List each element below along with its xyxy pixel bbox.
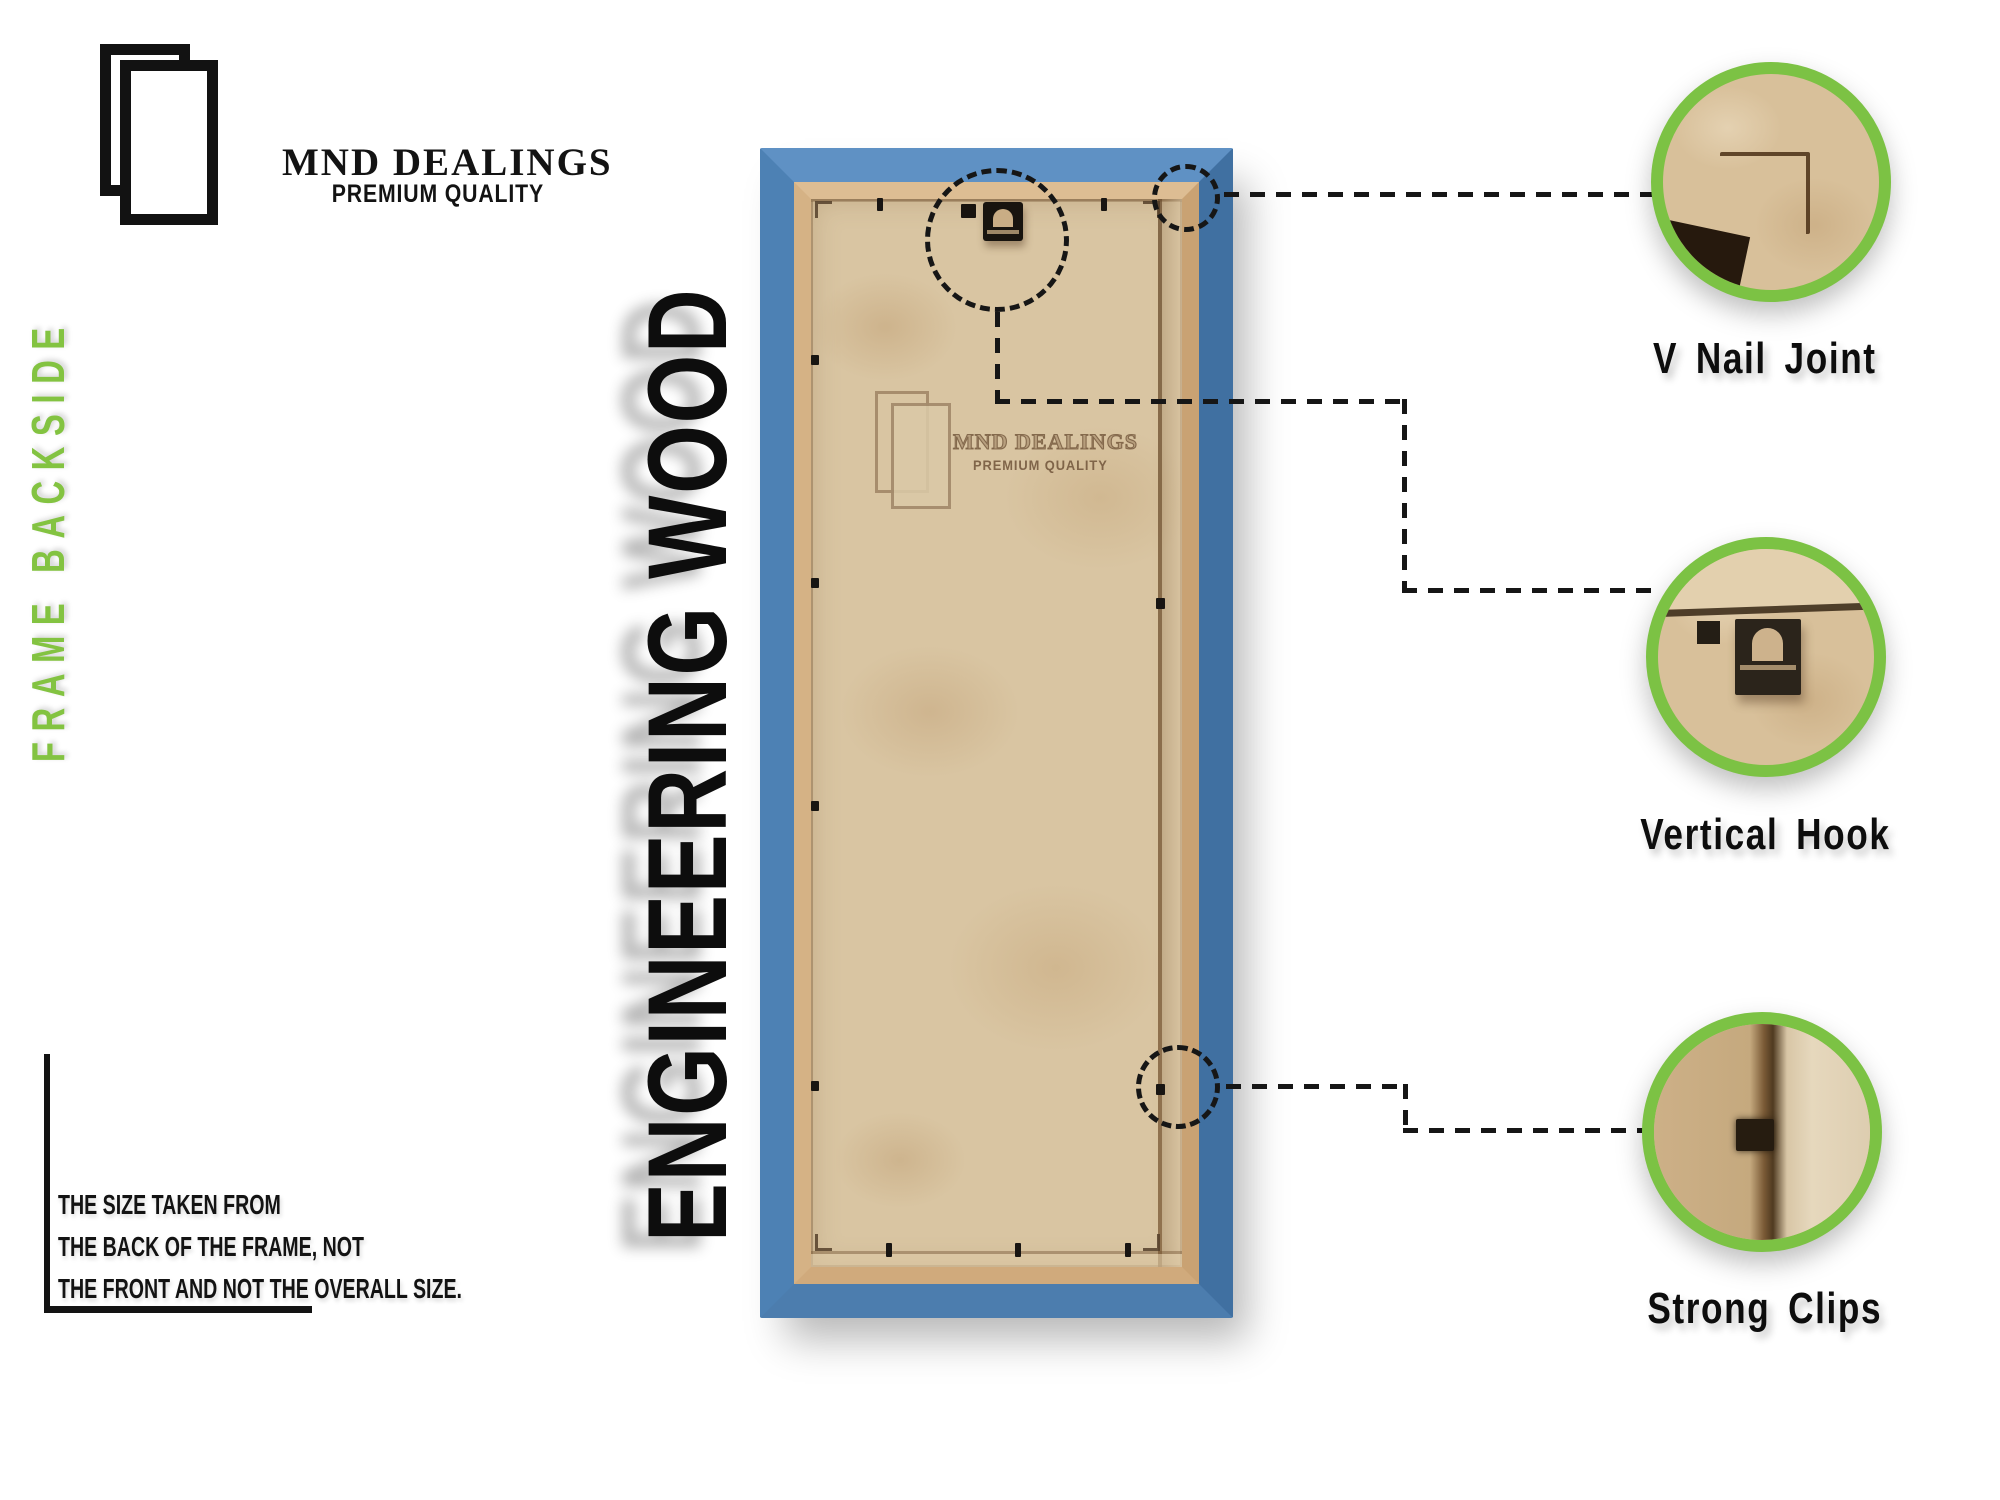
hook-bar [1740,665,1796,670]
watermark-name: MND DEALINGS [953,429,1138,455]
connector-vertical-hook-segment [995,312,1000,402]
hook-notch [1697,621,1720,644]
clip-mark [1125,1243,1131,1257]
brand-name: MND DEALINGS [282,140,613,185]
clip-mark [811,1081,819,1091]
v-nail-groove [1720,152,1810,234]
watermark-tagline: PREMIUM QUALITY [973,457,1108,473]
corner-bracket-icon [815,201,832,218]
note-accent-line-vertical [44,1054,50,1312]
hanging-hook-icon [1735,619,1801,695]
clip-mark [811,355,819,365]
clip-mark [811,801,819,811]
corner-bracket-icon [815,1234,832,1251]
highlight-circle-vertical-hook [925,168,1069,312]
size-note-line: THE BACK OF THE FRAME, NOT [58,1226,462,1268]
connector-strong-clips-segment [1226,1084,1408,1089]
clip-mark [877,198,883,211]
moulding-edge-strip [1658,549,1874,609]
callout-label-strong-clips: Strong Clips [1565,1284,1965,1334]
connector-strong-clips-segment [1403,1084,1408,1132]
size-note-line: THE FRONT AND NOT THE OVERALL SIZE. [58,1268,462,1310]
connector-vertical-hook-segment [1402,588,1658,593]
brand-tagline: PREMIUM QUALITY [332,180,544,209]
clip-mark [1156,598,1165,609]
hook-arch [1752,628,1783,661]
clip-mark [811,578,819,588]
strong-clip-icon [1736,1119,1774,1151]
brand-tagline-wrap: PREMIUM QUALITY [282,180,594,209]
watermark-frame-logo-front-icon [891,403,951,509]
corner-bracket-icon [1143,1234,1160,1251]
brand-frame-logo-front-icon [120,60,218,225]
product-title: ENGINEERING WOOD [632,191,752,1242]
connector-v-nail-joint [1224,192,1656,197]
callout-circle-v-nail-joint [1651,62,1891,302]
callout-label-v-nail-joint: V Nail Joint [1565,334,1965,384]
connector-vertical-hook-segment [1402,399,1407,591]
connector-strong-clips-segment [1403,1128,1653,1133]
product-infographic: MND DEALINGS PREMIUM QUALITY FRAME BACKS… [0,0,2000,1500]
clip-mark [886,1243,892,1257]
highlight-circle-v-nail-joint [1152,164,1220,232]
clip-mark [1101,198,1107,211]
callout-circle-strong-clips [1642,1012,1882,1252]
highlight-circle-strong-clips [1136,1045,1220,1129]
size-note-line: THE SIZE TAKEN FROM [58,1184,462,1226]
clip-mark [1015,1243,1021,1257]
connector-vertical-hook-segment [995,399,1407,404]
backing-watermark: MND DEALINGS PREMIUM QUALITY [875,391,1195,521]
callout-circle-vertical-hook [1646,537,1886,777]
callout-label-vertical-hook: Vertical Hook [1565,810,1965,860]
size-note: THE SIZE TAKEN FROM THE BACK OF THE FRAM… [58,1184,635,1310]
side-label-frame-backside: FRAME BACKSIDE [20,293,80,762]
